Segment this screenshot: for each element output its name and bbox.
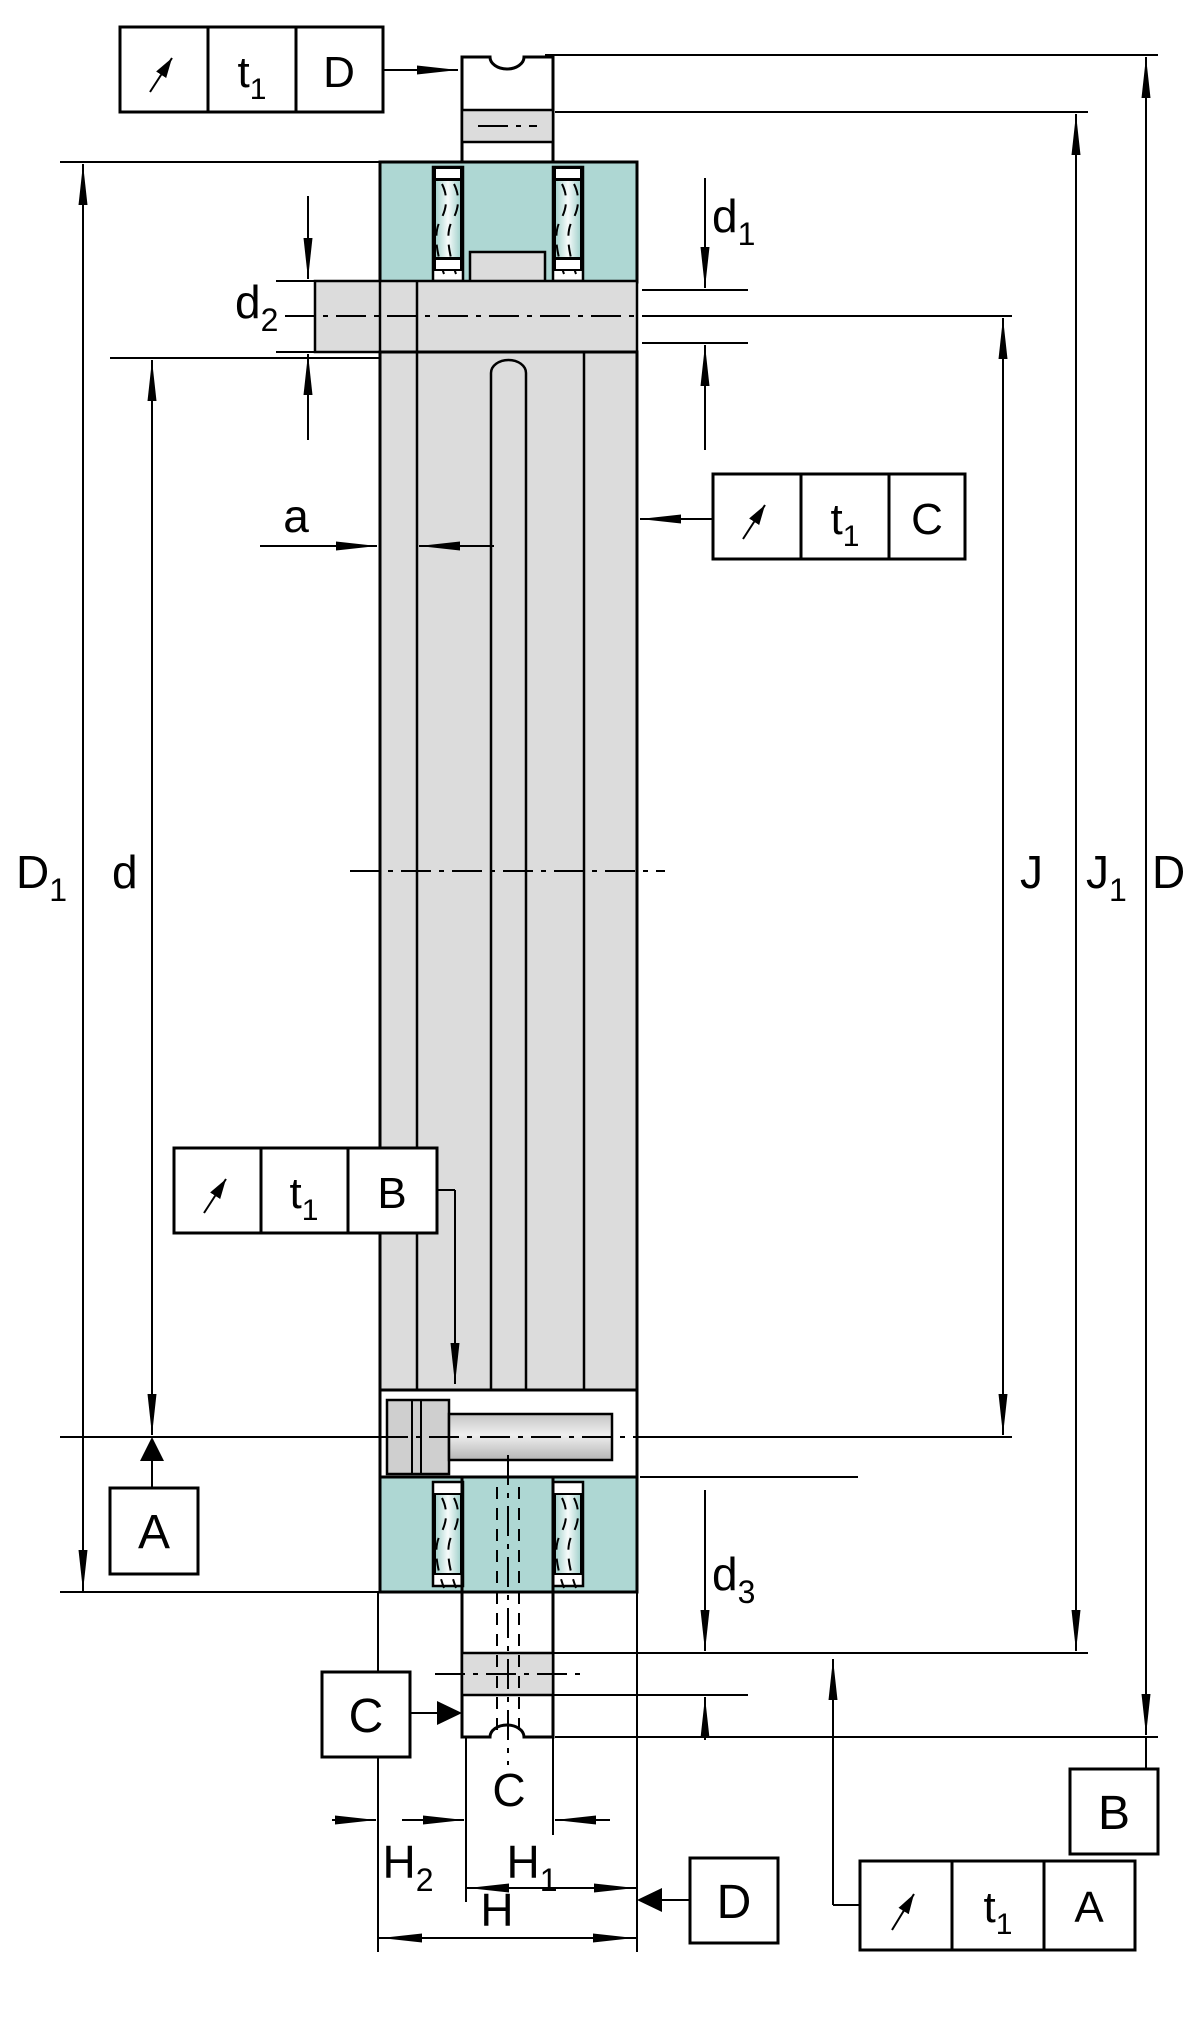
datum-A: A	[110, 1437, 198, 1574]
datum-D-label: D	[717, 1876, 752, 1929]
bearing-drawing-svg: A B C D t1 D t1 C	[0, 0, 1200, 2029]
label-D: D	[1152, 846, 1185, 898]
datum-A-triangle	[140, 1437, 164, 1461]
label-d2: d2	[235, 276, 278, 338]
fcf-top: t1 D	[120, 27, 458, 112]
datum-D: D	[637, 1858, 778, 1943]
label-a: a	[283, 490, 309, 542]
label-D1: D1	[16, 846, 67, 908]
datum-C: C	[322, 1672, 462, 1757]
fcf-right-datum: C	[911, 495, 943, 544]
label-d3: d3	[712, 1548, 755, 1610]
datum-B: B	[1070, 1769, 1158, 1854]
fcf-top-datum: D	[323, 48, 355, 97]
datum-A-label: A	[138, 1506, 170, 1559]
datum-C-arrow	[437, 1701, 462, 1725]
fcf-right: t1 C	[640, 474, 965, 559]
label-H: H	[480, 1884, 513, 1936]
datum-C-label: C	[349, 1690, 384, 1743]
upper-spacer	[470, 252, 545, 282]
label-J1: J1	[1086, 846, 1127, 908]
bearing-section	[315, 57, 637, 1737]
datum-D-arrow	[637, 1888, 662, 1912]
label-H2: H2	[382, 1836, 433, 1898]
technical-drawing: A B C D t1 D t1 C	[0, 0, 1200, 2029]
label-J: J	[1020, 846, 1043, 898]
fcf-bottom-datum: A	[1074, 1883, 1104, 1932]
upper-roller-cap-left-top	[435, 168, 461, 179]
fcf-left-datum: B	[377, 1169, 406, 1218]
label-d: d	[112, 846, 138, 898]
label-C: C	[492, 1764, 525, 1816]
label-d1: d1	[712, 190, 755, 252]
datum-B-label: B	[1098, 1787, 1130, 1840]
upper-roller-cap-right-top	[555, 168, 581, 179]
upper-roller-cap-right-bottom	[555, 259, 581, 270]
upper-roller-cap-left-bottom	[435, 259, 461, 270]
